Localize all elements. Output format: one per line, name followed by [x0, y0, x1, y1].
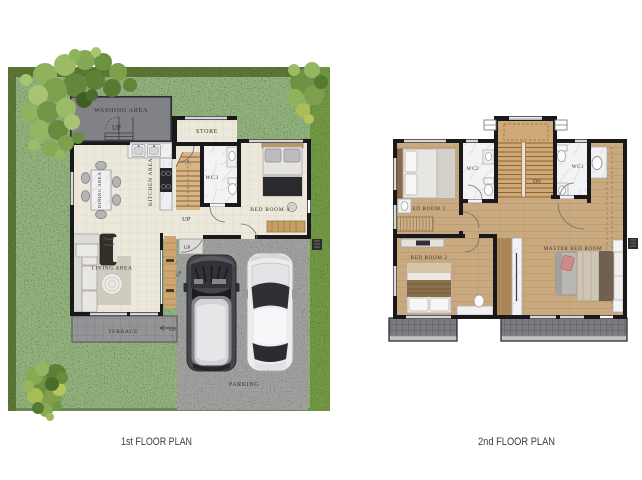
- svg-text:WC2: WC2: [467, 166, 480, 172]
- svg-text:TERRACE: TERRACE: [108, 329, 138, 335]
- svg-text:DINING AREA: DINING AREA: [97, 172, 102, 208]
- svg-text:UP: UP: [182, 216, 191, 223]
- svg-text:WC3: WC3: [205, 175, 218, 181]
- svg-text:STORE: STORE: [196, 129, 218, 135]
- svg-text:1st FLOOR PLAN: 1st FLOOR PLAN: [121, 436, 192, 448]
- svg-text:BED ROOM 2: BED ROOM 2: [410, 255, 447, 261]
- svg-text:2nd FLOOR PLAN: 2nd FLOOR PLAN: [478, 436, 555, 448]
- svg-text:DN: DN: [533, 179, 541, 185]
- svg-text:BED ROOM 4: BED ROOM 4: [250, 207, 290, 213]
- svg-text:UP: UP: [169, 327, 176, 333]
- svg-text:WASHING AREA: WASHING AREA: [94, 107, 148, 114]
- svg-text:UP: UP: [184, 246, 191, 251]
- svg-text:BED ROOM 3: BED ROOM 3: [408, 206, 445, 212]
- svg-text:WC1: WC1: [572, 164, 585, 170]
- svg-text:UP: UP: [112, 124, 121, 132]
- svg-text:PARKING: PARKING: [229, 382, 259, 388]
- svg-text:LIVING AREA: LIVING AREA: [92, 266, 133, 272]
- svg-text:KITCHEN AREA: KITCHEN AREA: [148, 158, 154, 206]
